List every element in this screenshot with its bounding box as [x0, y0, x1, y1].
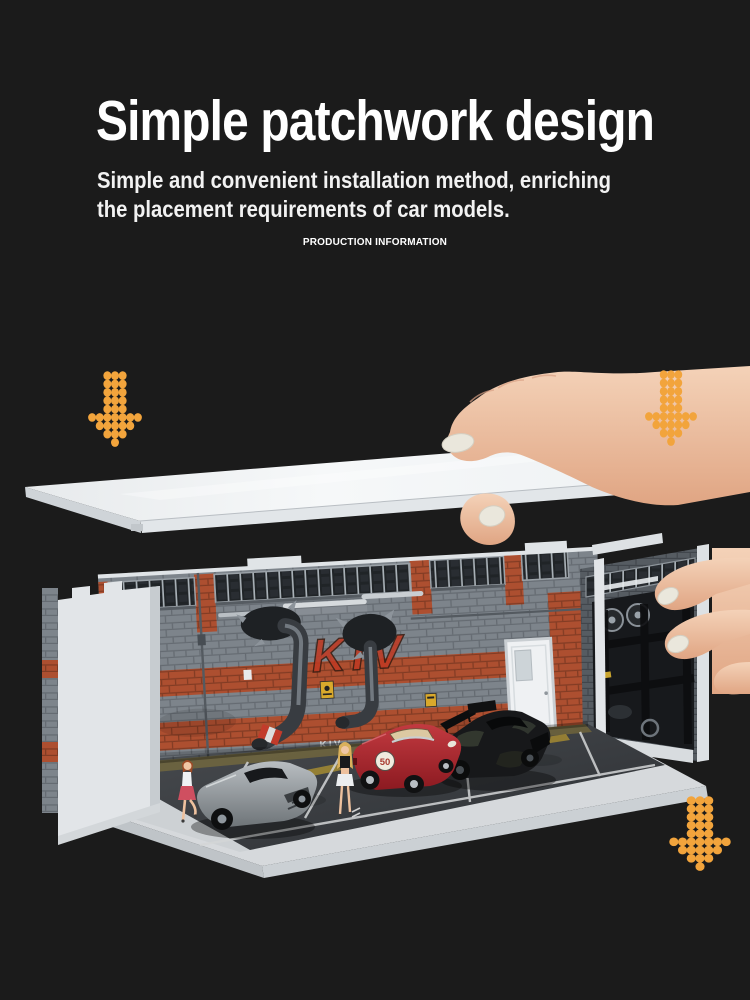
wall-junction-box [243, 670, 252, 680]
hazard-sign-small [425, 693, 437, 707]
down-arrow-icon [668, 796, 732, 873]
down-arrow-icon [87, 371, 143, 449]
hazard-sign-radiation [320, 681, 334, 699]
product-photo: KIV [0, 0, 750, 1000]
product-page: Simple patchwork design Simple and conve… [0, 0, 750, 1000]
diorama-left-wall [42, 581, 160, 845]
door-roundel-number: 50 [380, 757, 391, 768]
lid-notch [131, 524, 143, 531]
down-arrow-icon [644, 370, 698, 448]
corner-trim [594, 558, 606, 737]
hand-holding-lid [441, 366, 750, 545]
back-wall-edge [42, 588, 58, 813]
panel-top-tab [592, 533, 663, 555]
